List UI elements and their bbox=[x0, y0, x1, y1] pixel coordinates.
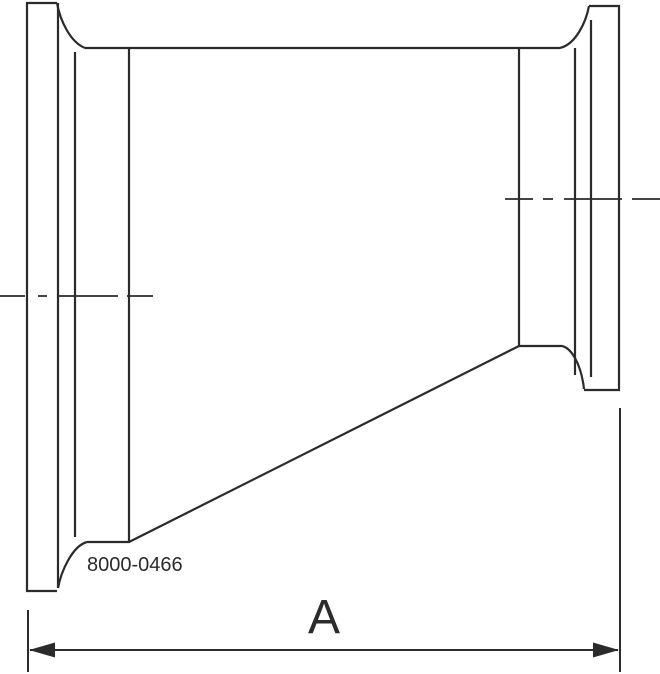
eccentric-reducer-drawing: A 8000-0466 bbox=[0, 0, 660, 674]
dimension-a-label: A bbox=[308, 591, 340, 644]
left-ferrule-bottom-flare-curve bbox=[58, 542, 87, 588]
technical-drawing-canvas: A 8000-0466 bbox=[0, 0, 660, 674]
right-clamp-ferrule bbox=[519, 6, 619, 390]
right-ferrule-bottom-flare-curve bbox=[562, 346, 584, 389]
right-ferrule-face-outline bbox=[584, 6, 619, 390]
dimension-a: A bbox=[28, 408, 620, 672]
part-number-label: 8000-0466 bbox=[87, 554, 183, 576]
dimension-arrow-left bbox=[29, 643, 55, 658]
left-ferrule-face-outline bbox=[27, 3, 57, 591]
reducer-body bbox=[85, 48, 562, 542]
right-ferrule-top-flare-curve bbox=[560, 6, 589, 48]
left-ferrule-top-flare-curve bbox=[57, 3, 85, 48]
centerlines bbox=[0, 199, 660, 296]
dimension-arrow-right bbox=[593, 643, 619, 658]
body-bottom-taper-edge bbox=[87, 346, 562, 542]
left-clamp-ferrule bbox=[27, 3, 129, 591]
